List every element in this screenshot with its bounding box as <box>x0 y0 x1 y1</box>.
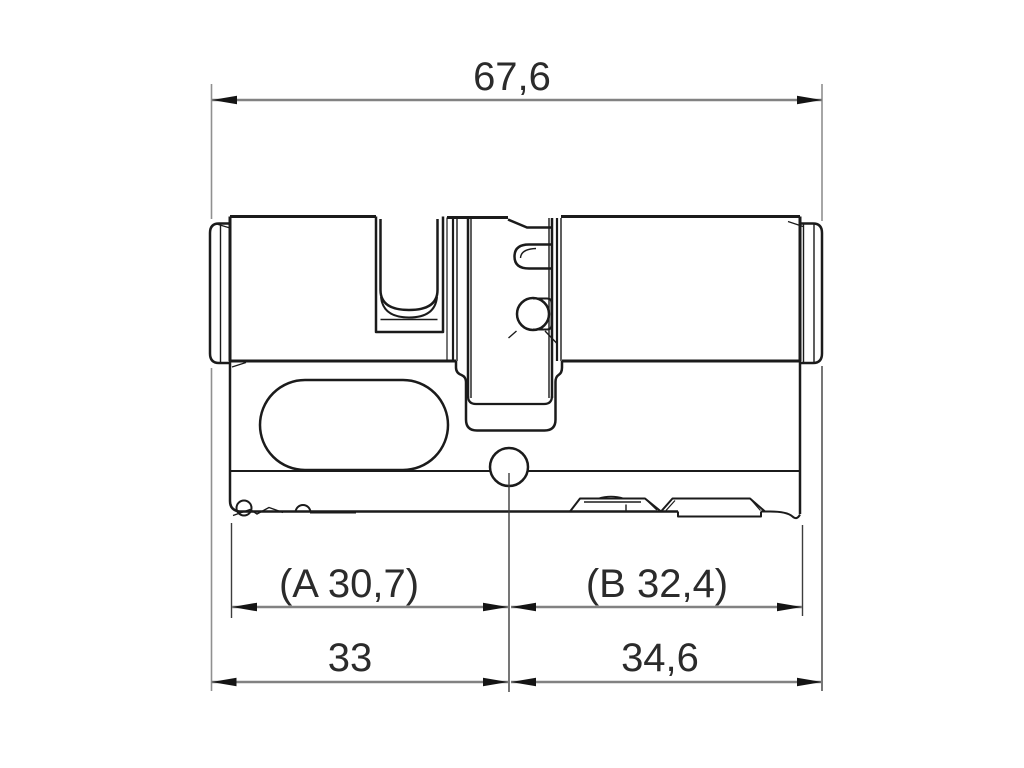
right-cap-inner-line <box>804 224 815 364</box>
dimension-a-label: (A 30,7) <box>279 562 419 606</box>
dimension-right-half: 34,6 <box>511 636 822 686</box>
tab-right-diag-right <box>750 499 761 511</box>
lower-housing <box>230 361 800 518</box>
arrowhead-346-right <box>797 678 822 687</box>
arrowhead-b-right <box>777 603 802 612</box>
cam-top-tongue <box>508 220 552 228</box>
arrowhead-a-right <box>483 603 508 612</box>
slot-outer <box>376 217 443 333</box>
technical-drawing-canvas: 67,6 <box>0 0 1024 768</box>
slot-inner-u <box>381 219 438 310</box>
chamfer-tick-bottom-left <box>232 363 246 368</box>
cam-assembly <box>447 218 562 431</box>
dimension-total-label: 67,6 <box>473 55 551 99</box>
drawing-page: 67,6 <box>0 0 1024 768</box>
arrowhead-left <box>212 96 237 105</box>
dimension-b: (B 32,4) <box>511 525 803 616</box>
dimension-b-label: (B 32,4) <box>586 562 728 606</box>
arrowhead-346-left <box>511 678 536 687</box>
dimension-left-half-label: 33 <box>328 636 373 680</box>
bottom-tabs <box>570 497 765 517</box>
dimension-a: (A 30,7) <box>232 523 509 618</box>
arrowhead-33-right <box>483 678 508 687</box>
cam-foot-outline <box>456 361 562 431</box>
housing-bottom-right <box>761 512 800 519</box>
housing-left-edge <box>230 361 239 512</box>
barrel-top-edge <box>230 217 800 218</box>
cam-mid-tongue-inner-arc <box>521 249 537 259</box>
dimension-left-half: 33 <box>212 636 509 686</box>
dimension-right-half-label: 34,6 <box>621 636 699 680</box>
tab-left-diag <box>645 499 657 511</box>
cam-pin-tick-left <box>509 331 517 338</box>
keyway-slot <box>376 217 443 333</box>
tab-right <box>661 499 765 512</box>
thumb-oval <box>260 380 448 470</box>
cam-pin-circle <box>517 298 549 330</box>
cylinder-body <box>210 217 822 519</box>
right-end-cap <box>800 224 822 364</box>
arrowhead-33-left <box>212 678 237 687</box>
tab-under-rect <box>678 512 761 517</box>
left-end-cap <box>210 224 230 364</box>
arrowhead-b-left <box>511 603 536 612</box>
cam-bar-bottom <box>468 396 552 404</box>
arrowhead-right <box>797 96 822 105</box>
arrowhead-a-left <box>232 603 257 612</box>
